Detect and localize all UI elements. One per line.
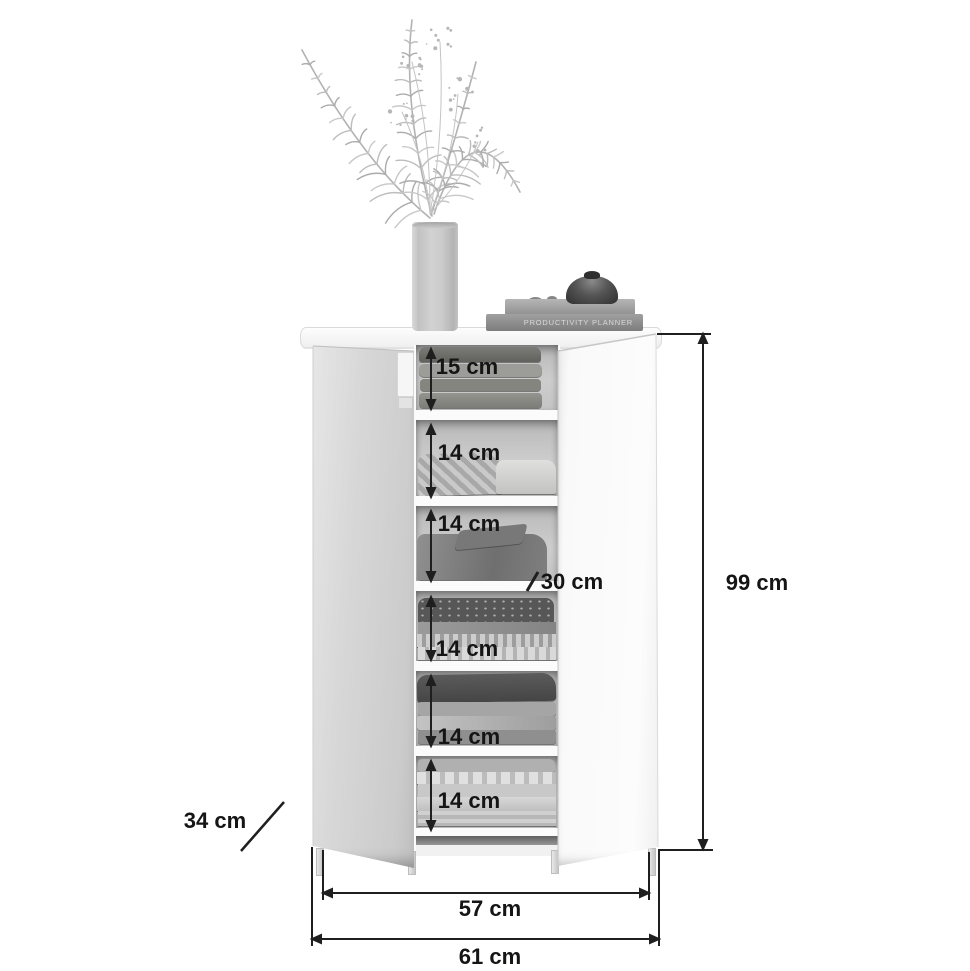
base-recess: [416, 836, 558, 845]
left-door-open: [307, 344, 414, 869]
clothes-stack: [496, 460, 556, 494]
dim-label-shelf-6: 14 cm: [438, 788, 500, 814]
door-hinge: [397, 352, 414, 397]
dim-label-shelf-5: 14 cm: [438, 724, 500, 750]
vase: [412, 222, 458, 331]
dim-label-side-depth: 34 cm: [184, 808, 246, 834]
dim-label-inner-width: 57 cm: [459, 896, 521, 922]
clothes-stack: [418, 598, 554, 623]
cabinet-leg: [316, 848, 324, 876]
dimension-diagram: PRODUCTIVITY PLANNER: [0, 0, 970, 971]
clothes-stack: [418, 759, 555, 772]
cabinet-interior: [414, 345, 560, 856]
bowl: [566, 276, 618, 304]
clothes-stack: [418, 702, 556, 716]
dim-label-height: 99 cm: [726, 570, 788, 596]
dim-label-outer-width: 61 cm: [459, 944, 521, 970]
door-hinge: [399, 398, 412, 408]
plant-image: [262, 2, 542, 332]
book-spine: PRODUCTIVITY PLANNER: [486, 314, 643, 331]
dim-label-shelf-3: 14 cm: [438, 511, 500, 537]
bowl-knob: [584, 271, 600, 279]
clothes-stack: [420, 379, 541, 391]
dim-label-shelf-2: 14 cm: [438, 440, 500, 466]
clothes-stack: [419, 393, 542, 408]
dim-label-depth: 30 cm: [541, 569, 603, 595]
cabinet-leg: [551, 850, 559, 874]
clothes-stack: [417, 673, 556, 703]
base-plinth: [416, 845, 558, 856]
cabinet-leg: [648, 848, 656, 876]
dim-label-shelf-4: 14 cm: [436, 636, 498, 662]
dim-label-shelf-1: 15 cm: [436, 354, 498, 380]
clothes-stack: [417, 772, 556, 784]
right-door-open: [556, 332, 660, 869]
vase-rim: [412, 222, 458, 229]
clothes-stack: [418, 622, 556, 634]
